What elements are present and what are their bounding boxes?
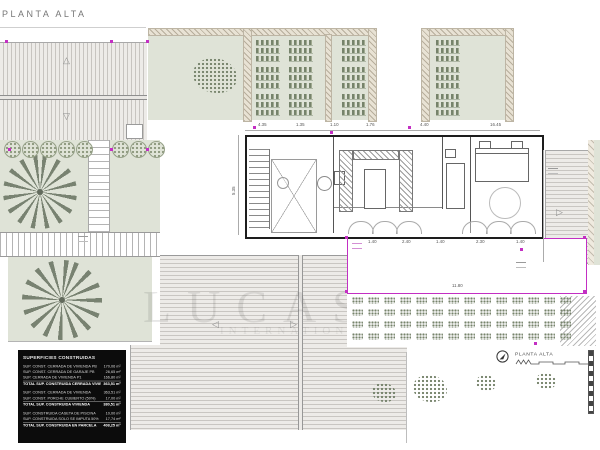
dimension-line (238, 135, 239, 235)
slope-plant-icon (464, 333, 475, 340)
hedge-row (289, 56, 313, 61)
vertical-scale-ruler (588, 350, 594, 414)
hedge-row (256, 75, 280, 80)
table-row-label: SUP. CONST. PORCHE CUBIERTO (50%) (23, 396, 95, 402)
bed (475, 148, 529, 182)
bush-icon (148, 141, 165, 158)
micro-label (548, 168, 558, 174)
nightstand (511, 141, 523, 149)
slope-plant-icon (464, 321, 475, 328)
slope-plant-icon (432, 333, 443, 340)
slope-plant-icon (416, 321, 427, 328)
hedge-row (256, 40, 280, 45)
hedge-row (342, 56, 366, 61)
hedge-row (436, 94, 460, 99)
survey-tick (110, 148, 113, 151)
hedge-row (289, 102, 313, 107)
dimension-label: 2.30 (476, 239, 485, 244)
hedge-row (256, 56, 280, 61)
stone-border-strip (325, 34, 332, 122)
table-row-label: SUP. CONSTRUIDA SOLO SE IMPUTA 50% (23, 416, 99, 422)
areas-table-header: SUPERFICIES CONSTRUIDAS (23, 355, 121, 360)
survey-tick (253, 126, 256, 129)
scale-bar-icon (515, 358, 593, 368)
slope-plant-icon (480, 321, 491, 328)
floor-plan-sheet: PLANTA ALTA △ ▽ ◁ ▷ ▷ LUCAS F INTERNATIO… (0, 0, 600, 450)
areas-table-body: SUP. CONST. CERRADA DE VIVIENDA PB170,06… (23, 364, 121, 428)
survey-tick (110, 40, 113, 43)
slope-plant-icon (384, 297, 395, 304)
slope-plant-icon (432, 309, 443, 316)
hedge-row (436, 75, 460, 80)
slope-plant-icon (560, 297, 571, 304)
dressing-island (364, 169, 386, 209)
palm-tree-icon (3, 155, 77, 229)
slope-plant-icon (352, 333, 363, 340)
survey-tick (330, 131, 333, 134)
slope-plant-icon (352, 309, 363, 316)
divider-line (0, 27, 146, 28)
stone-border-strip (428, 28, 514, 36)
slope-plant-icon (400, 321, 411, 328)
slope-plant-icon (368, 309, 379, 316)
table-row: TOTAL SUP. CONSTRUIDA CERRADA VIVIENDA36… (23, 380, 121, 386)
slope-plant-icon (464, 309, 475, 316)
slope-plant-icon (480, 309, 491, 316)
dimension-label: 1.40 (516, 239, 525, 244)
slope-plant-icon (528, 321, 539, 328)
bush-icon (58, 141, 75, 158)
table-row: TOTAL SUP. CONSTRUIDA EN PARCELA408,25 m… (23, 422, 121, 428)
slope-plant-icon (384, 321, 395, 328)
slope-plant-icon (512, 333, 523, 340)
dimension-line (543, 150, 544, 262)
page-title: PLANTA ALTA (2, 9, 87, 19)
plant-cluster-icon (476, 375, 496, 391)
arrow-right-icon: ▷ (556, 208, 563, 217)
double-height-void (271, 159, 317, 233)
hedge-row (289, 75, 313, 80)
stone-border-strip (243, 28, 252, 122)
plant-cluster-icon (372, 383, 396, 402)
slope-plant-icon (560, 321, 571, 328)
dimension-label: 1.40 (368, 239, 377, 244)
staircase (249, 149, 270, 229)
slope-plant-icon (352, 321, 363, 328)
stone-border-strip (505, 28, 514, 122)
survey-tick (146, 148, 149, 151)
deck-lower-terrace (130, 345, 407, 430)
dimension-label: 16.45 (490, 122, 501, 127)
pool-terrace (347, 238, 587, 294)
arrow-up-icon: △ (63, 56, 70, 65)
hedge-row (256, 83, 280, 88)
bush-icon (4, 141, 21, 158)
survey-tick (345, 290, 348, 293)
survey-tick (583, 290, 586, 293)
slope-plant-icon (400, 297, 411, 304)
table-row-label: SUP. CERRADA DE VIVIENDA P1 (23, 375, 81, 381)
slope-plant-icon (448, 297, 459, 304)
slope-plant-icon (448, 321, 459, 328)
deck-divider (0, 95, 147, 100)
stone-border-strip (368, 28, 377, 122)
bush-icon (22, 141, 39, 158)
slope-plant-icon (448, 333, 459, 340)
table-row: SUP. CONSTRUIDA SOLO SE IMPUTA 50%17,74 … (23, 416, 121, 422)
slope-plant-icon (496, 297, 507, 304)
hedge-row (436, 56, 460, 61)
areas-table: SUPERFICIES CONSTRUIDAS SUP. CONST. CERR… (18, 350, 126, 443)
table-row-value: 408,25 m² (103, 423, 120, 429)
survey-tick (583, 236, 586, 239)
slope-plant-icon (368, 333, 379, 340)
wardrobe (339, 150, 353, 212)
hedge-row (289, 94, 313, 99)
slope-plant-icon (496, 321, 507, 328)
survey-tick (8, 148, 11, 151)
slope-plant-icon (480, 333, 491, 340)
hedge-row (289, 67, 313, 72)
plant-cluster-icon (536, 373, 556, 389)
slope-plant-icon (496, 309, 507, 316)
slope-plant-icon (432, 297, 443, 304)
hedge-row (342, 67, 366, 72)
survey-tick (520, 248, 523, 251)
hedge-row (436, 83, 460, 88)
table-row-value: 17,74 m² (106, 416, 121, 422)
bush-icon (130, 141, 147, 158)
slope-plant-icon (528, 309, 539, 316)
dimension-label: 5.35 (231, 186, 236, 195)
garden-strip-right (594, 140, 600, 265)
table-row: SUP. CONST. PORCHE CUBIERTO (50%)17,00 m… (23, 396, 121, 402)
dimension-label: 1.10 (330, 122, 339, 127)
slope-plant-icon (560, 333, 571, 340)
survey-tick (534, 342, 537, 345)
hedge-row (256, 67, 280, 72)
slope-plant-icon (512, 321, 523, 328)
hedge-row (289, 48, 313, 53)
bush-icon (40, 141, 57, 158)
deck-structure-box (126, 124, 143, 139)
bush-icon (76, 141, 93, 158)
table-row-value: 17,00 m² (106, 396, 121, 402)
dimension-label: 4.40 (420, 122, 429, 127)
boundary-line (406, 352, 407, 443)
slope-plant-icon (528, 297, 539, 304)
slope-plant-icon (400, 309, 411, 316)
rug-circle (489, 187, 521, 219)
hedge-row (342, 48, 366, 53)
hedge-row (342, 75, 366, 80)
slope-plant-icon (528, 333, 539, 340)
wardrobe (399, 150, 413, 212)
slope-plant-icon (416, 309, 427, 316)
hedge-row (289, 110, 313, 115)
table-row-label: TOTAL SUP. CONSTRUIDA VIVIENDA (23, 402, 90, 408)
survey-tick (146, 40, 149, 43)
partition-wall (442, 137, 443, 209)
slope-plant-icon (416, 333, 427, 340)
slope-plant-icon (480, 297, 491, 304)
hedge-row (256, 94, 280, 99)
hedge-row (342, 94, 366, 99)
table-row: SUP. CERRADA DE VIVIENDA P1166,80 m² (23, 375, 121, 381)
slope-plant-icon (384, 309, 395, 316)
hedge-row (342, 110, 366, 115)
slope-plant-icon (512, 309, 523, 316)
survey-tick (5, 40, 8, 43)
micro-label (352, 243, 362, 249)
hedge-row (436, 48, 460, 53)
hedge-row (342, 83, 366, 88)
table-row-value: 166,80 m² (104, 375, 121, 381)
hedge-row (342, 102, 366, 107)
slope-plant-icon (544, 309, 555, 316)
round-table (317, 176, 332, 191)
dimension-label: 4.35 (258, 122, 267, 127)
table-row-label: TOTAL SUP. CONSTRUIDA EN PARCELA (23, 423, 96, 429)
wardrobe (353, 150, 399, 160)
dimension-label: 1.76 (366, 122, 375, 127)
partition-wall (333, 137, 334, 233)
hedge-row (256, 110, 280, 115)
partition-wall (470, 137, 471, 233)
slope-plant-icon (560, 309, 571, 316)
hedge-row (436, 67, 460, 72)
hedge-row (342, 40, 366, 45)
slope-plant-icon (512, 297, 523, 304)
slope-plant-icon (416, 297, 427, 304)
dimension-label: 1.35 (296, 122, 305, 127)
stone-border-strip (421, 28, 430, 122)
bathtub (446, 163, 465, 209)
micro-label (516, 262, 526, 268)
arrow-down-icon: ▽ (63, 112, 70, 121)
hedge-row (289, 40, 313, 45)
table-row-label: TOTAL SUP. CONSTRUIDA CERRADA VIVIENDA (23, 381, 101, 387)
survey-tick (345, 236, 348, 239)
toilet (445, 149, 456, 158)
plant-cluster-icon (193, 58, 237, 93)
slope-plant-icon (448, 309, 459, 316)
survey-tick (408, 126, 411, 129)
bed-headboard (476, 149, 528, 154)
slope-plant-icon (368, 297, 379, 304)
nightstand (479, 141, 491, 149)
table-row-value: 363,51 m² (103, 381, 120, 387)
slope-plant-icon (400, 333, 411, 340)
hedge-row (289, 83, 313, 88)
bush-icon (112, 141, 129, 158)
plant-cluster-icon (413, 375, 447, 402)
dimension-label: 1.40 (436, 239, 445, 244)
dimension-label: 11.80 (452, 283, 463, 288)
slope-plant-icon (544, 333, 555, 340)
table-row: TOTAL SUP. CONSTRUIDA VIVIENDA380,51 m² (23, 401, 121, 407)
micro-label (78, 236, 88, 242)
slope-plant-icon (464, 297, 475, 304)
slope-plant-icon (544, 321, 555, 328)
dimension-line (245, 130, 540, 131)
dimension-label: 2.40 (402, 239, 411, 244)
table-row-value: 380,51 m² (103, 402, 120, 408)
legend-label: PLANTA ALTA (515, 351, 553, 357)
slope-plant-icon (496, 333, 507, 340)
slope-plant-icon (352, 297, 363, 304)
hedge-row (436, 110, 460, 115)
hedge-row (256, 48, 280, 53)
void-marker-circle (277, 177, 289, 189)
north-arrow-icon (496, 350, 509, 363)
slope-plant-icon (432, 321, 443, 328)
hedge-row (256, 102, 280, 107)
slope-plant-icon (384, 333, 395, 340)
hedge-row (436, 40, 460, 45)
hedge-row (436, 102, 460, 107)
slope-plant-icon (544, 297, 555, 304)
slope-plant-icon (368, 321, 379, 328)
stone-border-strip (148, 28, 377, 36)
